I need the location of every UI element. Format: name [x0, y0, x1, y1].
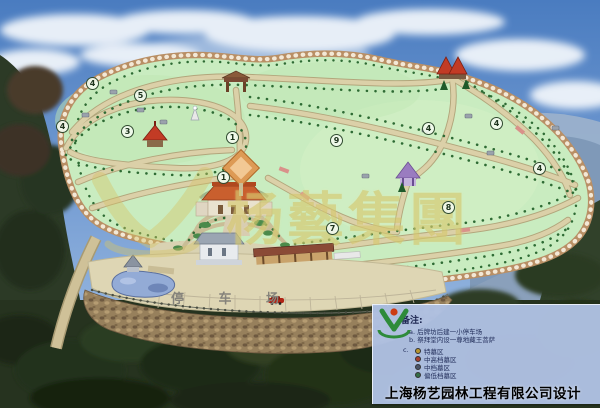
company-logo: [373, 305, 415, 339]
zone-bullet-icon: [415, 372, 421, 378]
area-marker-3: 3: [121, 125, 134, 138]
area-marker-4: 4: [56, 120, 69, 133]
legend-note-c: c.: [403, 347, 409, 354]
area-marker-4: 4: [422, 122, 435, 135]
zone-bullet-icon: [415, 356, 421, 362]
watermark-text: 杨藝集團: [226, 174, 470, 256]
area-marker-4: 4: [533, 162, 546, 175]
logo-bud: [390, 308, 397, 315]
legend-box: 备注: a. 后牌坊后建一小停车场 b. 祭拜堂内设一尊地藏王菩萨 c. 特墓区…: [372, 304, 600, 404]
area-marker-9: 9: [330, 134, 343, 147]
legend-zone-item: 偏低档墓区: [415, 371, 457, 379]
area-marker-4: 4: [490, 117, 503, 130]
legend-note-a: a. 后牌坊后建一小停车场: [409, 329, 482, 336]
legend-note-b: b. 祭拜堂内设一尊地藏王菩萨: [409, 337, 495, 344]
legend-zone-list: 特墓区中高档墓区中档墓区偏低档墓区: [415, 347, 457, 379]
area-marker-4: 4: [86, 77, 99, 90]
area-marker-1: 1: [226, 131, 239, 144]
area-marker-7: 7: [326, 222, 339, 235]
area-marker-5: 5: [134, 89, 147, 102]
zone-bullet-icon: [415, 348, 421, 354]
area-marker-1: 1: [217, 171, 230, 184]
company-name: 上海杨艺园林工程有限公司设计: [385, 382, 581, 402]
area-marker-8: 8: [442, 201, 455, 214]
zone-bullet-icon: [415, 364, 421, 370]
site-plan-rendering: 454319444178 杨藝集團 停 车 场 备注: a. 后牌坊后建一小停车…: [0, 0, 600, 408]
parking-lot-label: 停 车 场: [171, 288, 294, 307]
zone-label: 偏低档墓区: [424, 370, 457, 380]
